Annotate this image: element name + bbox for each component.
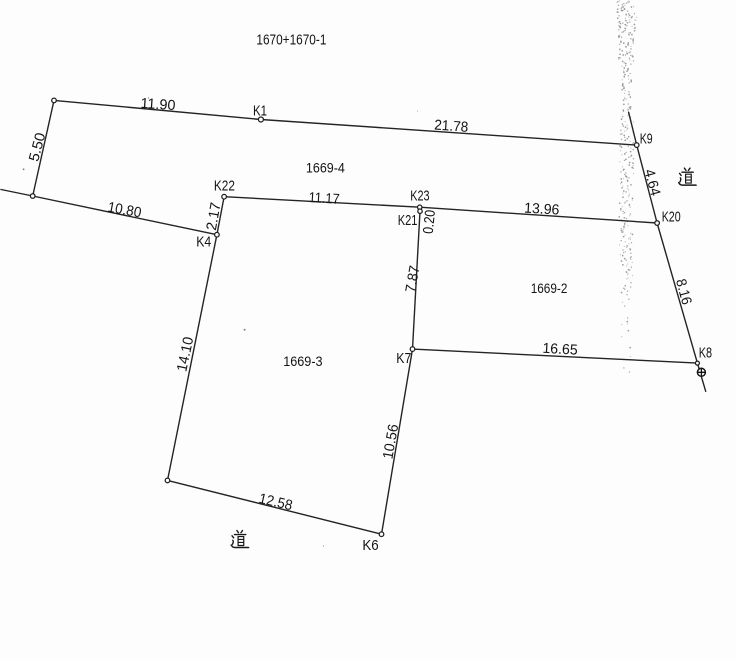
svg-text:K20: K20 bbox=[662, 209, 681, 226]
svg-text:1670+1670-1: 1670+1670-1 bbox=[256, 33, 326, 49]
svg-text:K1: K1 bbox=[253, 102, 267, 119]
svg-text:1669-2: 1669-2 bbox=[531, 280, 568, 296]
svg-text:13.96: 13.96 bbox=[524, 201, 560, 219]
svg-text:21.78: 21.78 bbox=[434, 118, 469, 136]
svg-text:K22: K22 bbox=[214, 177, 235, 194]
svg-text:11.90: 11.90 bbox=[140, 96, 176, 114]
svg-text:11.17: 11.17 bbox=[308, 190, 340, 208]
svg-text:1669-4: 1669-4 bbox=[306, 159, 345, 175]
svg-text:K6: K6 bbox=[362, 537, 378, 554]
svg-text:K21: K21 bbox=[398, 212, 418, 229]
svg-text:K23: K23 bbox=[410, 187, 429, 204]
svg-text:K8: K8 bbox=[699, 345, 712, 362]
svg-text:K4: K4 bbox=[196, 234, 211, 251]
svg-text:0.20: 0.20 bbox=[421, 209, 439, 235]
svg-text:1669-3: 1669-3 bbox=[283, 353, 323, 369]
svg-text:16.65: 16.65 bbox=[542, 341, 578, 359]
svg-text:K7: K7 bbox=[396, 350, 411, 367]
svg-text:K9: K9 bbox=[640, 131, 653, 148]
